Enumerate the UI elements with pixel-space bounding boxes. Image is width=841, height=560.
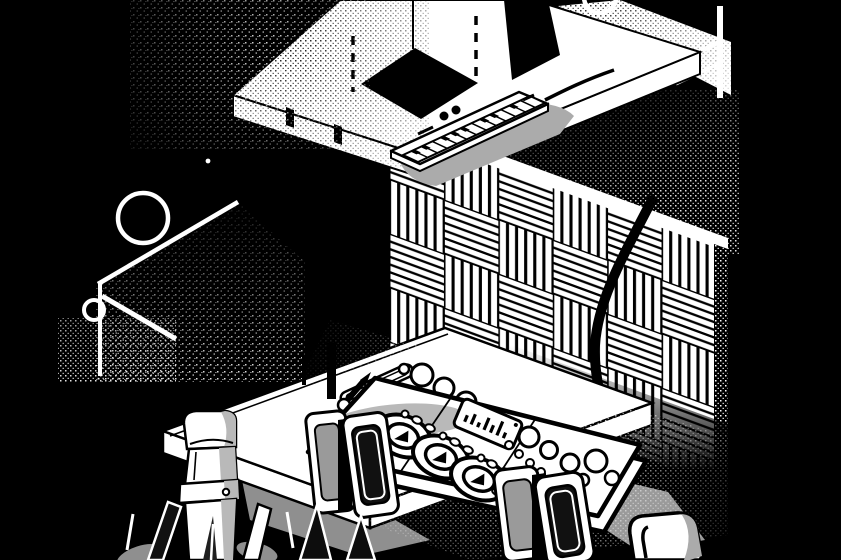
illustration-canvas [0, 0, 841, 560]
monitor-left [305, 410, 399, 518]
speck-dot [206, 159, 211, 164]
stand-pole [327, 343, 336, 399]
table-leg [717, 6, 723, 98]
chair [630, 513, 702, 560]
monitor-right [493, 466, 595, 560]
studio-illustration [0, 0, 841, 560]
stand-pole-thin [302, 357, 306, 385]
